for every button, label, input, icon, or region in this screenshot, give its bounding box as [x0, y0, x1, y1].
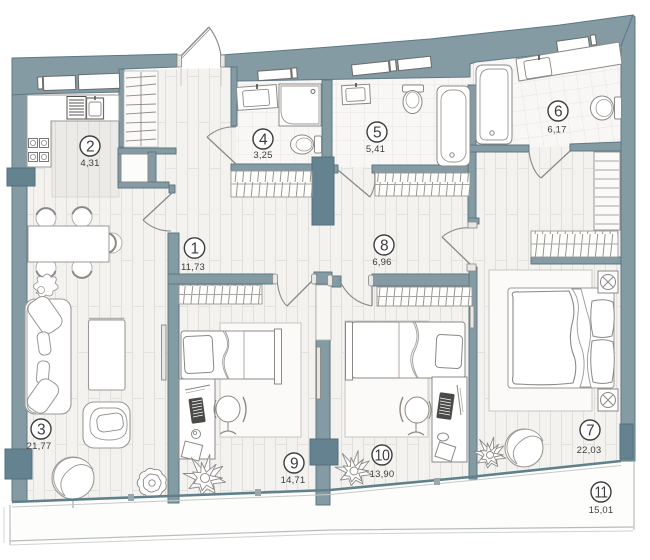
svg-text:3: 3: [37, 422, 45, 439]
svg-text:9: 9: [290, 456, 298, 473]
svg-text:11: 11: [595, 485, 608, 502]
svg-text:6,17: 6,17: [547, 124, 566, 135]
svg-text:6: 6: [554, 104, 562, 121]
svg-text:4: 4: [259, 132, 268, 149]
svg-text:13,90: 13,90: [370, 469, 395, 480]
svg-text:7: 7: [586, 423, 594, 440]
svg-text:11,73: 11,73: [181, 262, 205, 273]
svg-text:1: 1: [190, 241, 198, 258]
svg-text:6,96: 6,96: [372, 257, 391, 268]
svg-text:5,41: 5,41: [366, 144, 385, 155]
svg-text:4,31: 4,31: [80, 158, 99, 169]
svg-text:2: 2: [86, 139, 94, 156]
svg-text:3,25: 3,25: [253, 150, 272, 161]
svg-text:21,77: 21,77: [27, 441, 52, 452]
svg-text:14,71: 14,71: [281, 475, 306, 486]
svg-text:15,01: 15,01: [589, 505, 614, 516]
svg-text:5: 5: [373, 125, 381, 142]
svg-text:10: 10: [375, 448, 391, 465]
svg-text:8: 8: [380, 238, 388, 255]
svg-text:22,03: 22,03: [577, 445, 602, 456]
